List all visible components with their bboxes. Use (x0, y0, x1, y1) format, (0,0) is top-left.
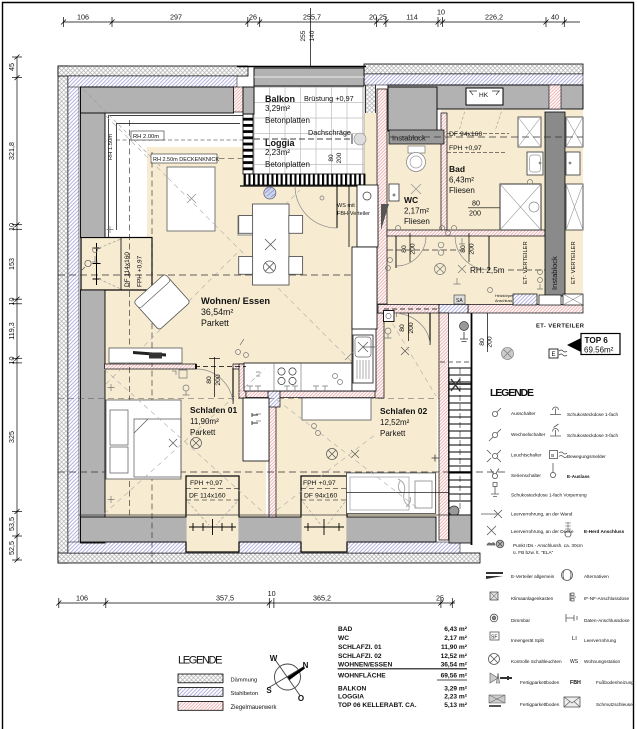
svg-text:200: 200 (469, 243, 476, 255)
svg-text:W: W (270, 654, 278, 663)
svg-text:LOGGIA: LOGGIA (338, 694, 364, 701)
svg-text:297: 297 (170, 13, 182, 22)
svg-text:N: N (303, 661, 309, 670)
svg-text:Dachschräge: Dachschräge (308, 128, 351, 137)
svg-text:Leerverrohrung: Leerverrohrung (584, 638, 616, 643)
svg-text:Schlafen 01: Schlafen 01 (190, 405, 238, 415)
svg-text:FPH +0,97: FPH +0,97 (303, 480, 336, 487)
svg-text:RH: 2,5m: RH: 2,5m (470, 266, 505, 275)
svg-text:10: 10 (268, 589, 276, 598)
svg-text:10: 10 (7, 298, 16, 306)
svg-text:ET- VERTEILER: ET- VERTEILER (523, 241, 529, 284)
svg-text:Betonplatten: Betonplatten (265, 160, 310, 169)
svg-text:SCHLAFZI. 02: SCHLAFZI. 02 (338, 653, 382, 660)
svg-text:11,90 m²: 11,90 m² (441, 644, 468, 651)
svg-text:Fertigparkettboden: Fertigparkettboden (520, 680, 560, 685)
svg-text:Schmutzschleuse: Schmutzschleuse (596, 702, 633, 707)
svg-text:Stahlbeton: Stahlbeton (231, 691, 259, 697)
svg-text:20,25: 20,25 (369, 13, 387, 22)
svg-text:80: 80 (479, 338, 486, 346)
svg-text:Schukosteckdose 3-fach: Schukosteckdose 3-fach (567, 433, 618, 438)
svg-text:Parkett: Parkett (190, 428, 216, 437)
svg-text:Balkon: Balkon (265, 94, 295, 104)
svg-text:Bewegungsmelder: Bewegungsmelder (567, 454, 606, 459)
svg-text:10: 10 (7, 223, 16, 231)
svg-text:80: 80 (328, 154, 335, 162)
svg-text:Instablock: Instablock (550, 256, 559, 290)
svg-text:200: 200 (215, 374, 222, 386)
svg-text:Wohnungsstation: Wohnungsstation (584, 659, 621, 664)
svg-text:FBH: FBH (570, 680, 581, 686)
svg-text:DF 114x160: DF 114x160 (124, 252, 131, 287)
svg-text:Anschluss: Anschluss (495, 299, 512, 303)
svg-text:TOP 6: TOP 6 (585, 336, 609, 345)
svg-text:E-Auslass: E-Auslass (567, 474, 590, 479)
svg-text:Ziegelmauerwerk: Ziegelmauerwerk (231, 705, 278, 711)
svg-text:80: 80 (460, 245, 467, 253)
svg-text:200: 200 (469, 209, 481, 218)
svg-text:S: S (266, 686, 272, 695)
svg-text:40: 40 (551, 13, 559, 22)
svg-text:LEGENDE: LEGENDE (490, 387, 534, 399)
svg-text:Leuchtschalter: Leuchtschalter (511, 453, 542, 458)
svg-text:2,17m²: 2,17m² (404, 207, 429, 216)
svg-text:Loggia: Loggia (265, 138, 295, 148)
svg-text:26: 26 (249, 13, 257, 22)
svg-text:WC: WC (338, 635, 349, 642)
svg-text:Punkt IDs - Anschlussh. ca. 30: Punkt IDs - Anschlussh. ca. 30cm (513, 543, 583, 548)
svg-text:114: 114 (406, 13, 417, 22)
svg-text:HK: HK (479, 92, 489, 99)
svg-text:357,5: 357,5 (216, 594, 234, 603)
svg-text:321,8: 321,8 (7, 142, 16, 160)
svg-text:3,29m²: 3,29m² (265, 104, 290, 113)
svg-text:SF: SF (491, 635, 497, 641)
svg-text:Schukosteckdose 1-fach Vorperr: Schukosteckdose 1-fach Vorperrung (511, 493, 587, 498)
svg-text:FPH +0,97: FPH +0,97 (190, 480, 223, 487)
svg-text:Alternativen: Alternativen (584, 574, 609, 579)
svg-text:WOHNEN/ESSEN: WOHNEN/ESSEN (338, 662, 392, 669)
svg-text:Leerverrohrung, an der Wand: Leerverrohrung, an der Wand (511, 512, 573, 517)
svg-text:DF 94x160: DF 94x160 (304, 493, 337, 500)
svg-text:36,54 m²: 36,54 m² (441, 662, 468, 669)
svg-text:325: 325 (7, 431, 16, 443)
svg-text:Schukosteckdose 1-fach: Schukosteckdose 1-fach (567, 412, 618, 417)
svg-text:Daten-Anschlussdose: Daten-Anschlussdose (584, 618, 630, 623)
svg-text:Serienschalter: Serienschalter (511, 473, 541, 478)
svg-text:2,23m²: 2,23m² (265, 148, 290, 157)
svg-text:25: 25 (436, 594, 444, 603)
svg-text:Bad: Bad (449, 164, 465, 174)
svg-text:255: 255 (300, 30, 307, 41)
svg-text:Fußbodenheizung: Fußbodenheizung (596, 680, 634, 685)
svg-text:6,43 m²: 6,43 m² (444, 626, 468, 633)
svg-text:DF 94x160: DF 94x160 (449, 131, 482, 138)
svg-text:SCHLAFZI. 01: SCHLAFZI. 01 (338, 644, 382, 651)
svg-text:255,7: 255,7 (303, 13, 321, 22)
svg-text:ü. FB bzw. lt. "ELA": ü. FB bzw. lt. "ELA" (513, 550, 554, 555)
svg-text:12,52 m²: 12,52 m² (441, 653, 468, 660)
svg-text:106: 106 (76, 594, 88, 603)
svg-text:69,56 m²: 69,56 m² (441, 673, 468, 680)
svg-text:Dämmung: Dämmung (231, 678, 258, 684)
svg-text:6,43m²: 6,43m² (449, 176, 474, 185)
svg-text:200: 200 (410, 243, 417, 255)
svg-text:45: 45 (7, 63, 16, 71)
svg-text:Klimaanlagenkasten: Klimaanlagenkasten (511, 596, 554, 601)
svg-text:80: 80 (401, 245, 408, 253)
svg-text:Heizkörper: Heizkörper (495, 294, 514, 298)
svg-text:Parkett: Parkett (201, 318, 229, 328)
svg-text:FPH +0,97: FPH +0,97 (449, 145, 482, 152)
svg-text:WOHNFLÄCHE: WOHNFLÄCHE (338, 672, 386, 680)
svg-text:2,23 m²: 2,23 m² (444, 694, 468, 701)
svg-text:LEGENDE: LEGENDE (178, 655, 223, 667)
svg-text:Fertigparkettboden: Fertigparkettboden (520, 702, 560, 707)
svg-text:200: 200 (336, 152, 343, 163)
svg-text:119,3: 119,3 (7, 322, 16, 339)
svg-text:DF 114x160: DF 114x160 (189, 493, 226, 500)
svg-text:E: E (552, 352, 556, 358)
svg-text:53,5: 53,5 (7, 517, 16, 531)
svg-text:E-Herd Anschluss: E-Herd Anschluss (584, 529, 625, 534)
svg-text:LI: LI (572, 636, 577, 642)
svg-text:Kontrolle Schaltleuchten: Kontrolle Schaltleuchten (511, 659, 562, 664)
svg-text:226,2: 226,2 (485, 13, 503, 22)
svg-text:Dimmbar: Dimmbar (511, 618, 530, 623)
svg-text:12,52m²: 12,52m² (380, 418, 410, 427)
svg-text:BALKON: BALKON (338, 686, 366, 693)
svg-text:WC: WC (404, 195, 418, 205)
svg-text:ET- VERTEILER: ET- VERTEILER (536, 324, 585, 330)
svg-text:52,5: 52,5 (7, 541, 16, 555)
svg-text:SA: SA (456, 298, 463, 304)
svg-text:2,17 m²: 2,17 m² (444, 635, 468, 642)
svg-text:Wechselschalter: Wechselschalter (511, 432, 546, 437)
svg-text:IF-NF-Anschlussdose: IF-NF-Anschlussdose (584, 596, 629, 601)
svg-text:80: 80 (472, 199, 480, 208)
svg-text:Fliesen: Fliesen (404, 217, 430, 226)
svg-text:E-Verteiler allgemein: E-Verteiler allgemein (511, 574, 555, 579)
svg-text:TOP 06 KELLERABT. CA.: TOP 06 KELLERABT. CA. (338, 702, 417, 709)
svg-text:106: 106 (77, 13, 89, 22)
svg-text:10: 10 (437, 8, 445, 17)
svg-text:FPH +0,97: FPH +0,97 (137, 255, 144, 287)
svg-text:Innengerät Split: Innengerät Split (511, 638, 545, 643)
svg-text:RH 2.00m: RH 2.00m (133, 134, 159, 140)
svg-text:Ausschalter: Ausschalter (511, 411, 536, 416)
svg-text:Leerverrohrung, an der Decke: Leerverrohrung, an der Decke (511, 529, 574, 534)
svg-text:WS: WS (570, 659, 579, 665)
svg-text:69.56m²: 69.56m² (584, 346, 614, 355)
svg-text:B: B (551, 453, 554, 458)
svg-text:Betonplatten: Betonplatten (265, 116, 310, 125)
svg-text:5,13 m²: 5,13 m² (444, 702, 468, 709)
svg-text:Instablock: Instablock (392, 134, 426, 143)
svg-text:200: 200 (408, 322, 415, 334)
svg-text:36,54m²: 36,54m² (201, 307, 233, 317)
svg-text:10: 10 (7, 357, 16, 365)
svg-text:Wohnen/ Essen: Wohnen/ Essen (201, 296, 270, 306)
svg-text:3,29 m²: 3,29 m² (444, 686, 468, 693)
svg-text:153: 153 (7, 258, 16, 270)
svg-text:11,90m²: 11,90m² (190, 417, 219, 426)
svg-text:FBH-Verteiler: FBH-Verteiler (337, 211, 370, 217)
svg-text:365,2: 365,2 (313, 594, 331, 603)
svg-text:80: 80 (206, 376, 213, 384)
svg-text:WS mit: WS mit (337, 203, 355, 209)
svg-text:Fliesen: Fliesen (449, 186, 475, 195)
svg-text:RH 1.50m: RH 1.50m (108, 134, 114, 160)
svg-text:O: O (298, 694, 304, 703)
svg-text:Schlafen 02: Schlafen 02 (380, 406, 428, 416)
svg-text:BAD: BAD (338, 626, 353, 633)
svg-text:Brüstung +0,97: Brüstung +0,97 (304, 94, 354, 103)
svg-text:80: 80 (399, 324, 406, 332)
svg-text:Parkett: Parkett (380, 429, 406, 438)
svg-text:140: 140 (309, 30, 316, 41)
svg-text:RH 2.50m DECKENKNICK: RH 2.50m DECKENKNICK (153, 157, 219, 163)
svg-text:ET- VERTEILER: ET- VERTEILER (571, 241, 577, 284)
